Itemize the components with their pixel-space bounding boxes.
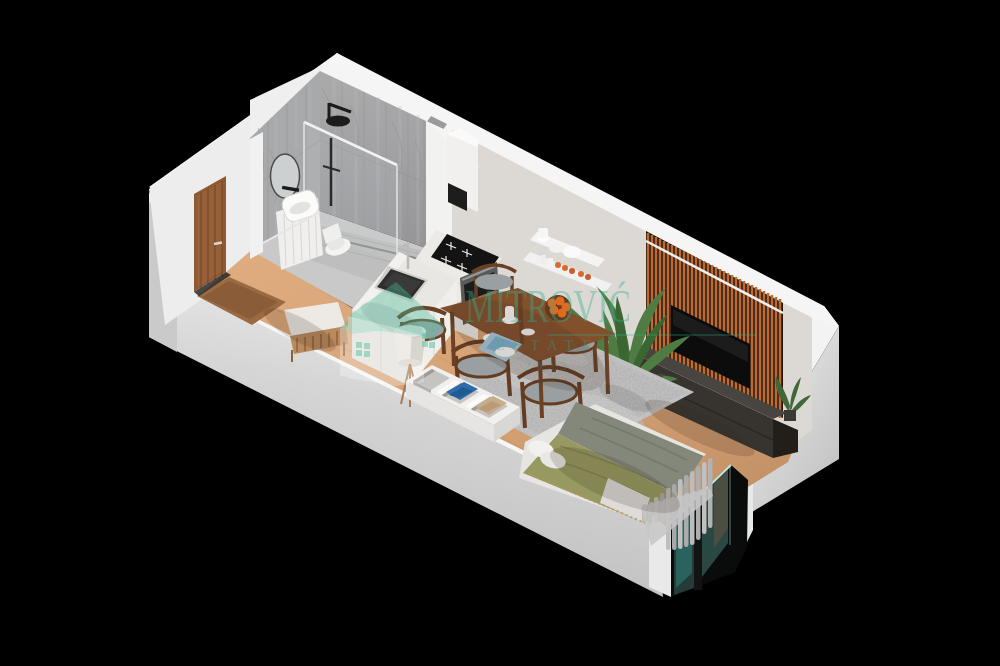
svg-text:MITROVIĆ: MITROVIĆ	[465, 281, 631, 332]
svg-text:2023: 2023	[524, 359, 572, 373]
svg-text:ESTATE: ESTATE	[496, 338, 599, 353]
